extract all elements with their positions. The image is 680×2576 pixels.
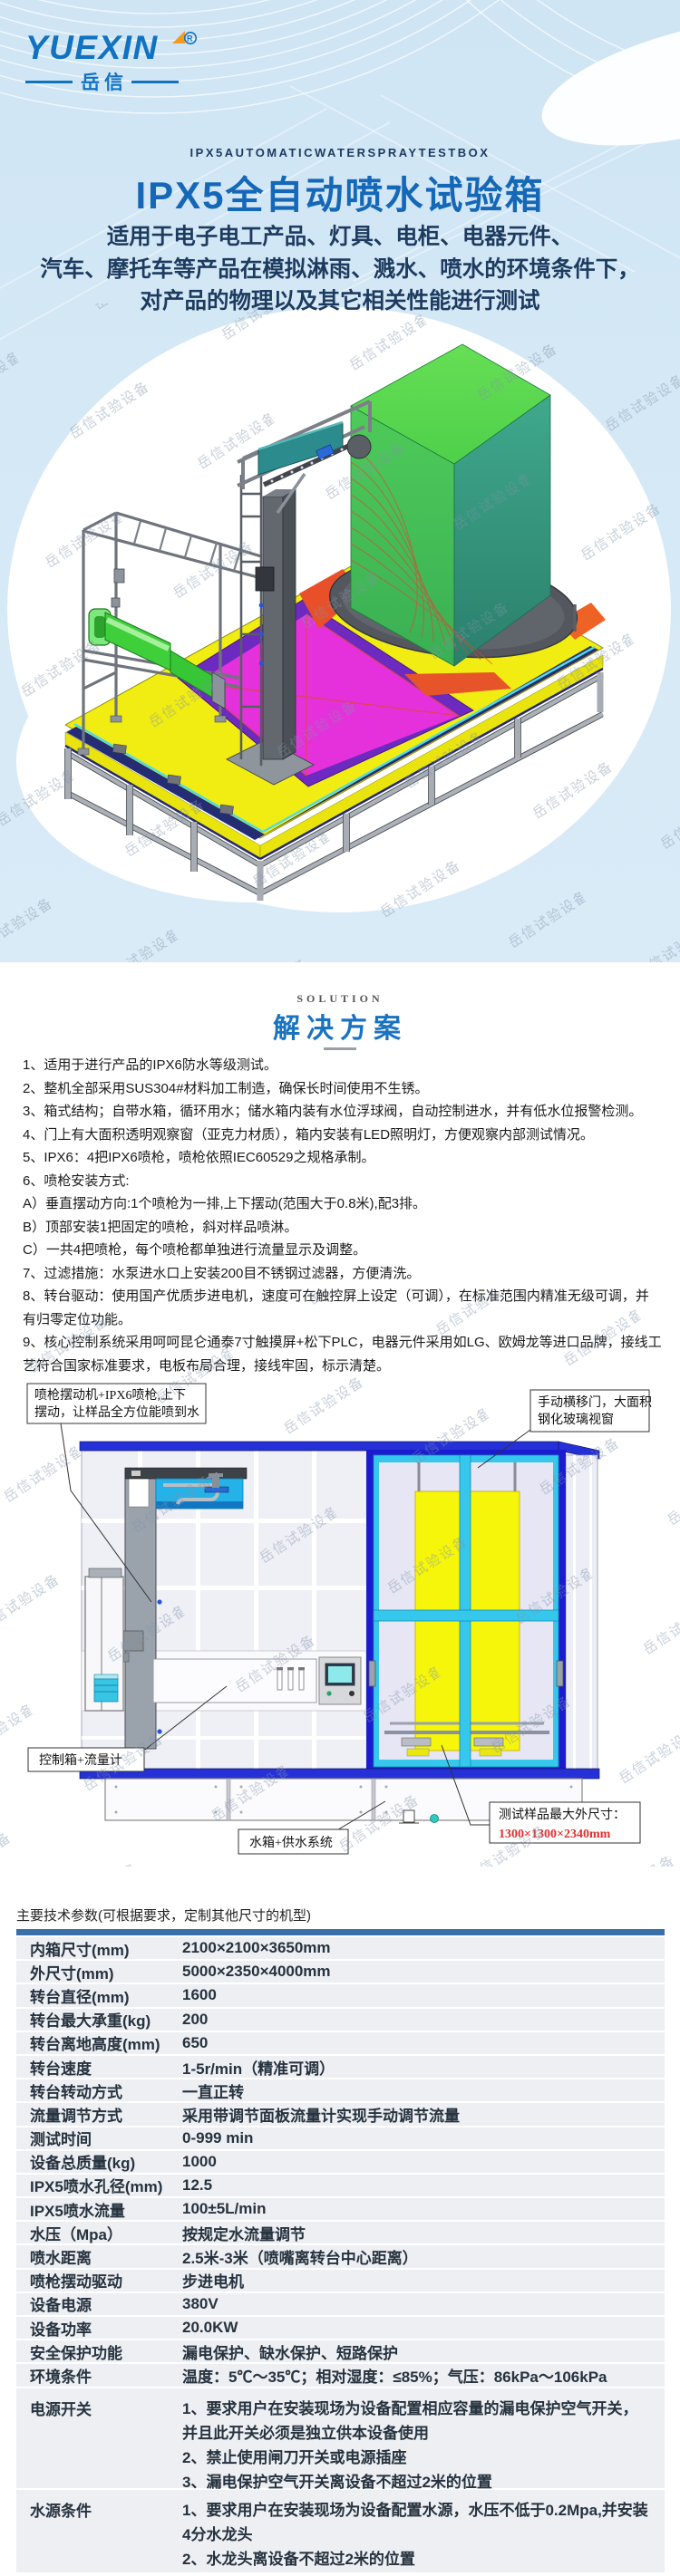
svg-text:R: R xyxy=(187,34,194,43)
